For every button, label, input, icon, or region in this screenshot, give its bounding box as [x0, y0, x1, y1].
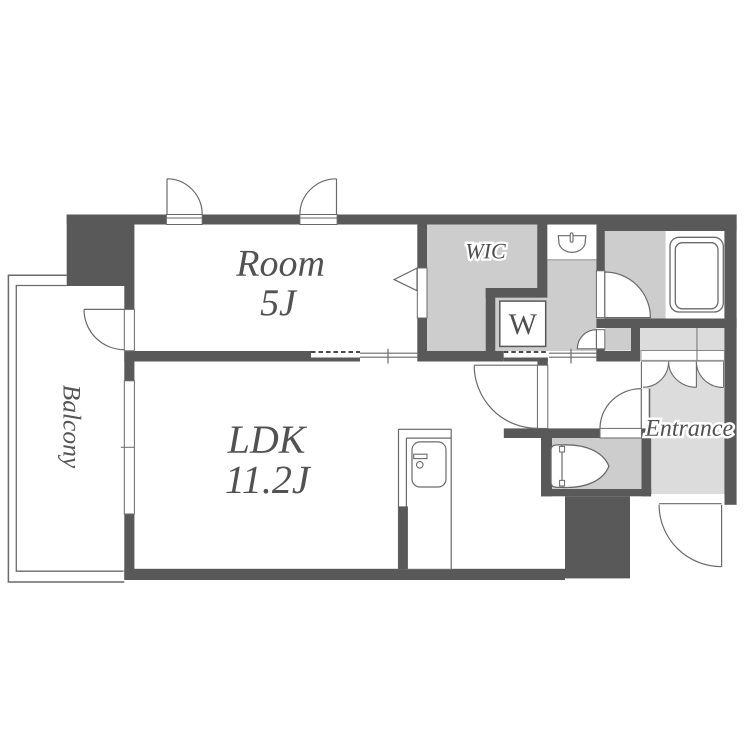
svg-text:11.2J: 11.2J	[225, 457, 312, 502]
svg-text:Room: Room	[235, 243, 325, 285]
svg-text:LDK: LDK	[227, 417, 308, 462]
svg-text:5J: 5J	[260, 282, 298, 324]
svg-text:W: W	[509, 308, 538, 341]
svg-text:WIC: WIC	[465, 238, 506, 263]
svg-text:Entrance: Entrance	[644, 416, 733, 442]
svg-text:Balcony: Balcony	[58, 385, 87, 469]
